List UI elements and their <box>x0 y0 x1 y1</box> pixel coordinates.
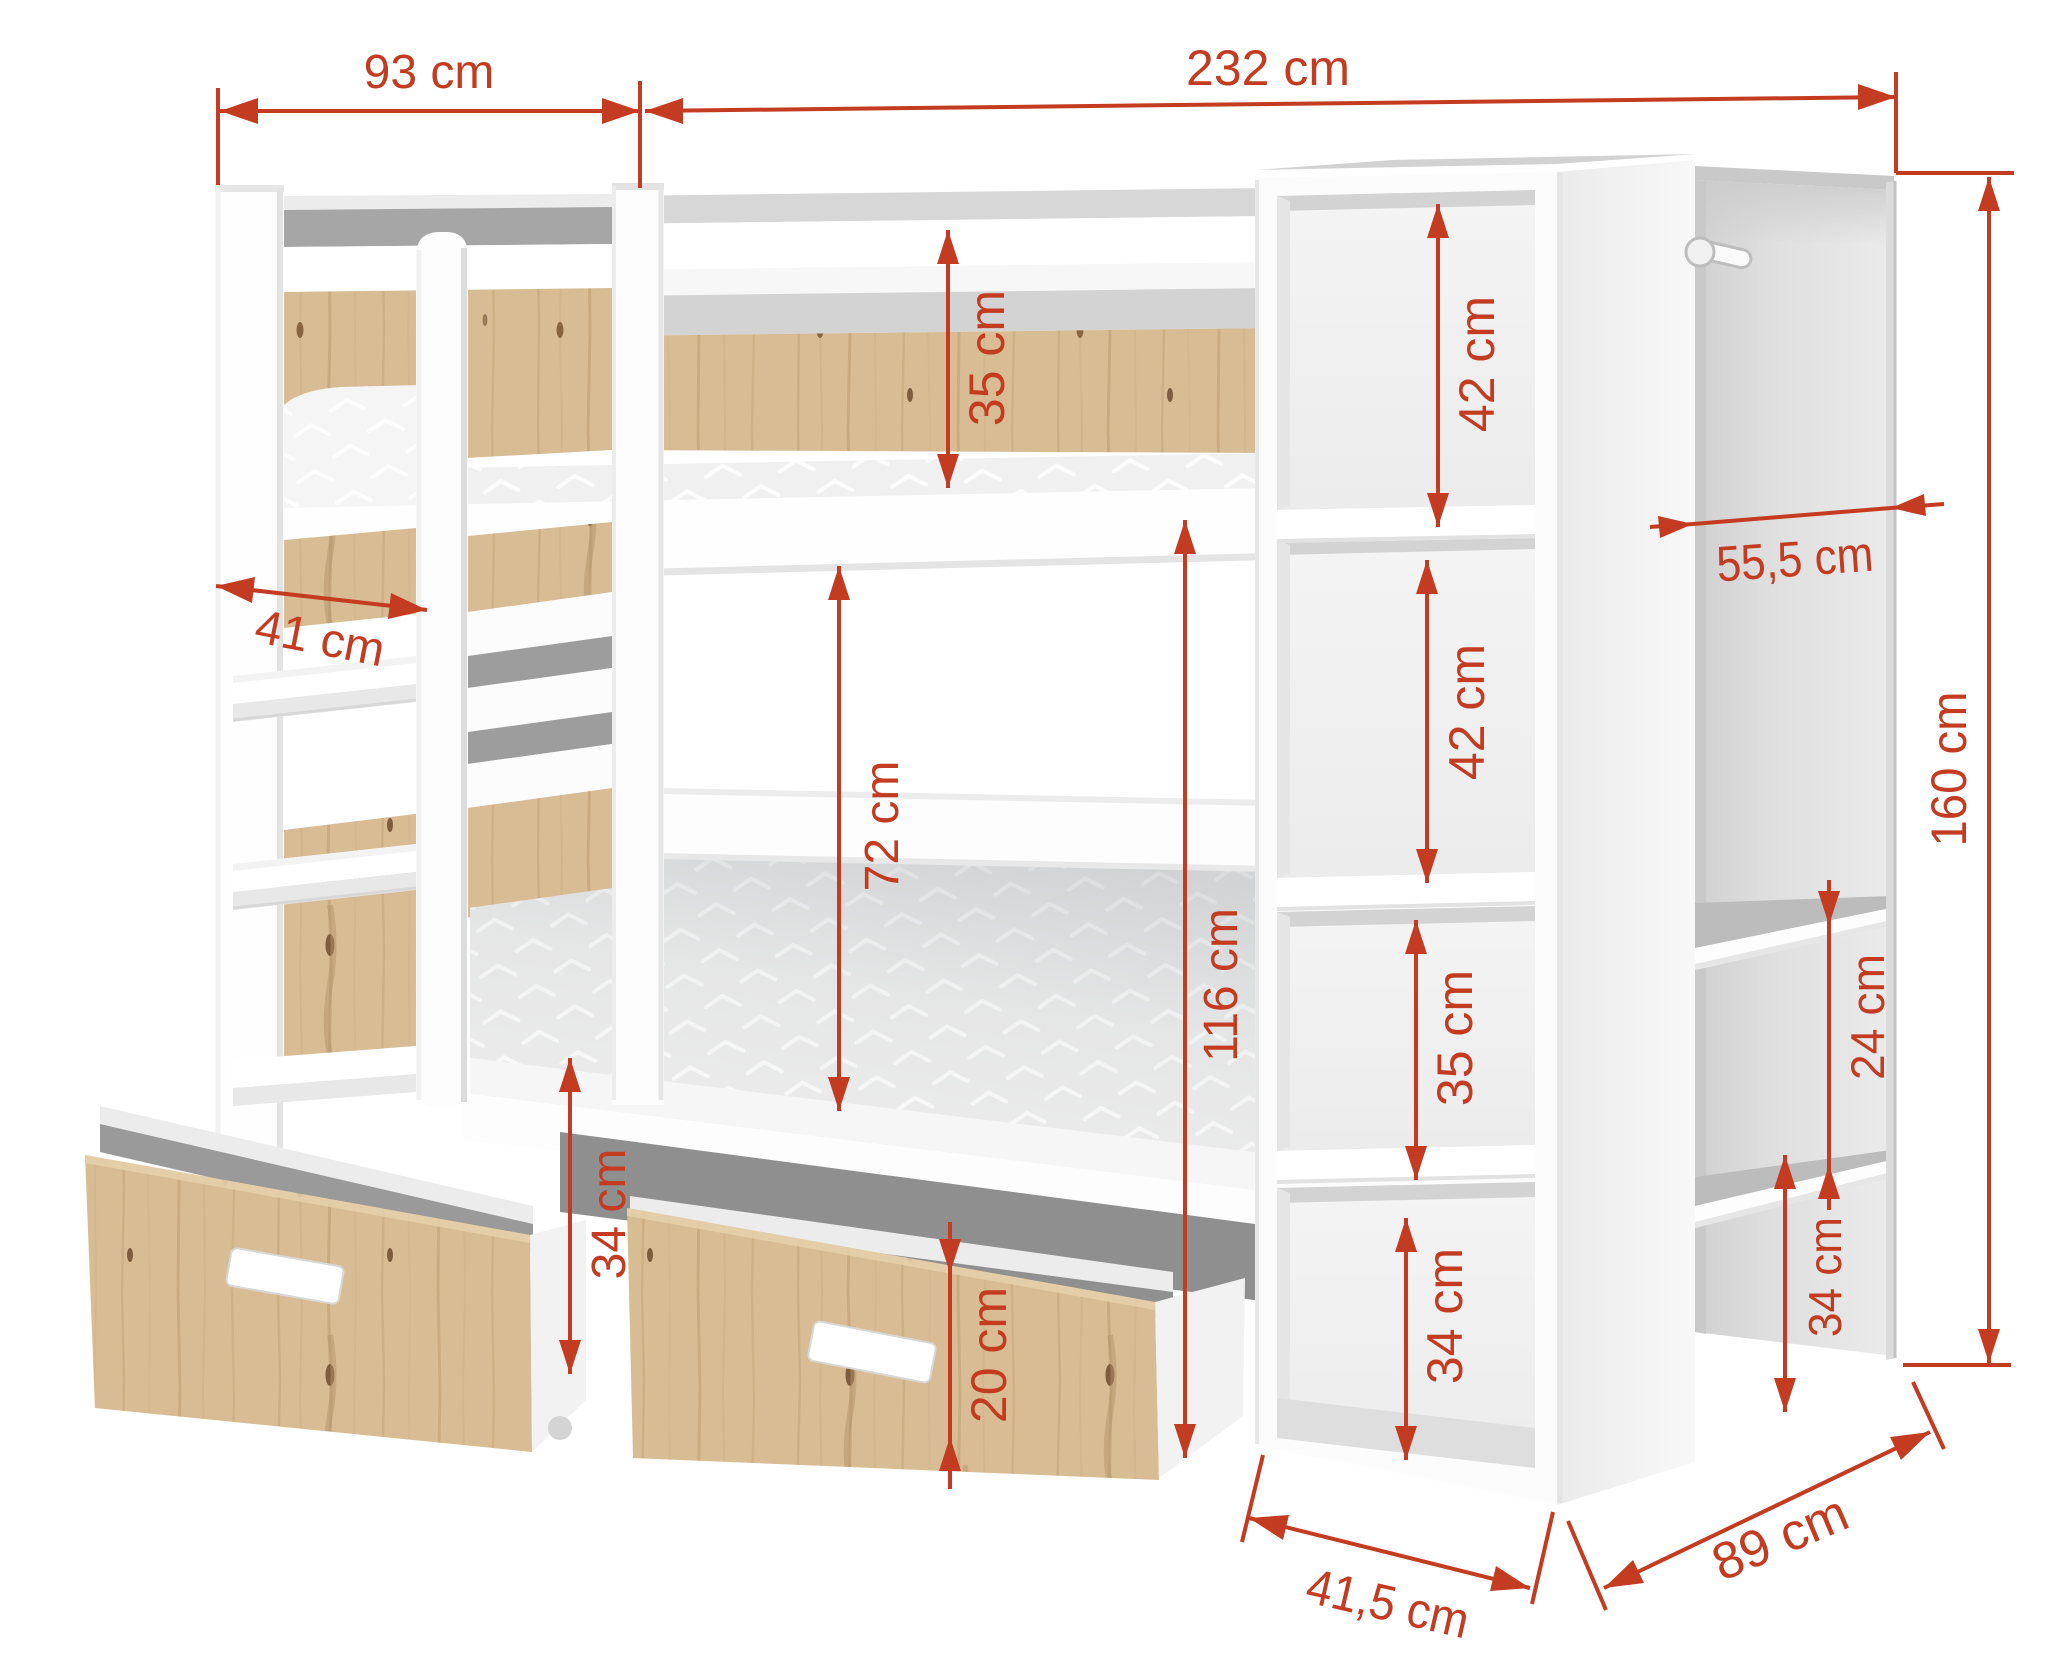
svg-text:34 cm: 34 cm <box>1417 1248 1473 1384</box>
svg-text:72 cm: 72 cm <box>856 761 909 892</box>
svg-text:232 cm: 232 cm <box>1186 40 1350 96</box>
svg-text:34 cm: 34 cm <box>583 1149 636 1280</box>
svg-text:35 cm: 35 cm <box>959 290 1015 426</box>
svg-text:116 cm: 116 cm <box>1195 908 1248 1062</box>
svg-text:93 cm: 93 cm <box>364 46 495 99</box>
svg-text:42 cm: 42 cm <box>1449 296 1505 432</box>
svg-text:55,5 cm: 55,5 cm <box>1715 526 1876 593</box>
svg-text:160 cm: 160 cm <box>1921 692 1977 847</box>
svg-text:20 cm: 20 cm <box>961 1287 1017 1423</box>
svg-text:35 cm: 35 cm <box>1427 970 1483 1106</box>
svg-text:42 cm: 42 cm <box>1439 644 1495 780</box>
svg-text:24 cm: 24 cm <box>1841 954 1894 1080</box>
svg-text:34 cm: 34 cm <box>1799 1217 1851 1337</box>
